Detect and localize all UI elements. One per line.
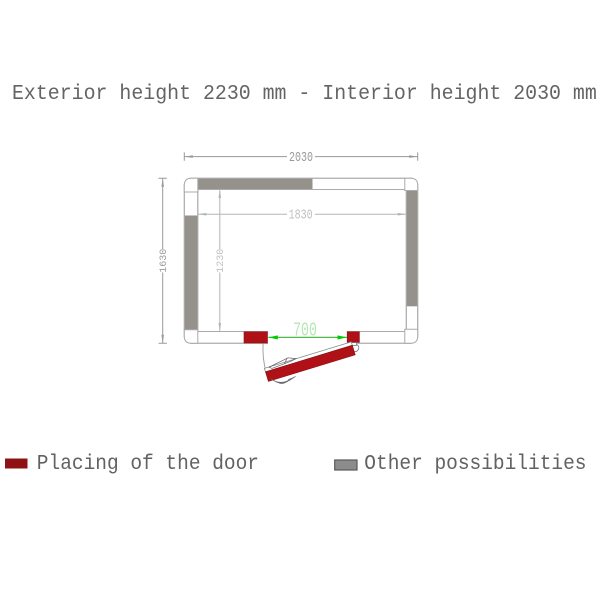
svg-text:700: 700 [293,320,317,342]
svg-text:Placing of the door: Placing of the door [37,452,259,476]
svg-text:Exterior height 2230 mm - Inte: Exterior height 2230 mm - Interior heigh… [12,83,597,107]
svg-text:1830: 1830 [289,207,313,223]
svg-text:1230: 1230 [216,249,227,273]
svg-text:Other possibilities: Other possibilities [364,452,586,476]
svg-text:1630: 1630 [159,249,170,273]
svg-text:2030: 2030 [289,150,313,166]
